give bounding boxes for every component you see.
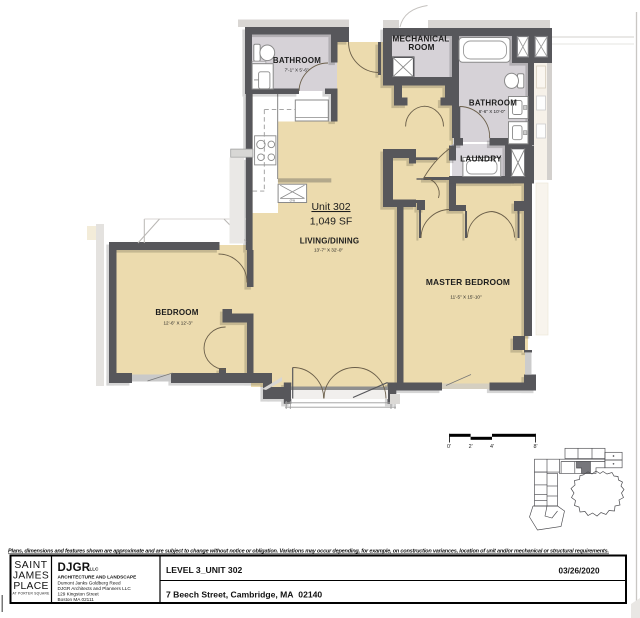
svg-text:Plans, dimensions and features: Plans, dimensions and features shown are… — [8, 549, 609, 555]
svg-text:2': 2' — [469, 444, 473, 450]
svg-text:129 Kingston Street: 129 Kingston Street — [58, 592, 100, 597]
svg-text:0': 0' — [447, 444, 451, 450]
svg-text:Boston MA 02111: Boston MA 02111 — [58, 597, 95, 602]
svg-text:1,049 SF: 1,049 SF — [310, 216, 353, 228]
svg-text:11'-5" X 15'-10": 11'-5" X 15'-10" — [450, 295, 482, 300]
svg-text:d w: d w — [290, 199, 296, 203]
svg-text:AT PORTER SQUARE: AT PORTER SQUARE — [12, 592, 49, 596]
svg-text:6'-6" X 10'-0": 6'-6" X 10'-0" — [479, 109, 506, 114]
svg-text:JAMES: JAMES — [13, 571, 49, 582]
svg-text:DJGR: DJGR — [58, 562, 91, 574]
svg-text:BATHROOM: BATHROOM — [273, 56, 321, 65]
svg-text:PLACE: PLACE — [13, 581, 48, 592]
svg-text:Dumont Janks Goldberg Reed: Dumont Janks Goldberg Reed — [58, 581, 121, 586]
svg-text:LAUNDRY: LAUNDRY — [460, 155, 502, 164]
svg-text:DJGR Architects and Planners L: DJGR Architects and Planners LLC — [58, 586, 132, 591]
svg-text:BATHROOM: BATHROOM — [469, 99, 517, 108]
svg-text:LIVING/DINING: LIVING/DINING — [300, 237, 360, 246]
svg-text:LEVEL 3_UNIT 302: LEVEL 3_UNIT 302 — [166, 565, 242, 575]
svg-text:LLC: LLC — [90, 567, 100, 572]
svg-text:SAINT: SAINT — [14, 560, 47, 571]
svg-text:03/26/2020: 03/26/2020 — [559, 567, 600, 576]
svg-text:Unit 302: Unit 302 — [311, 201, 350, 213]
svg-text:ROOM: ROOM — [408, 43, 434, 52]
svg-text:8': 8' — [533, 444, 537, 450]
svg-text:7'-1" X 5'-6": 7'-1" X 5'-6" — [285, 68, 309, 73]
svg-text:ARCHITECTURE AND LANDSCAPE: ARCHITECTURE AND LANDSCAPE — [58, 575, 137, 580]
svg-text:7 Beech Street, Cambridge, MA: 7 Beech Street, Cambridge, MA 02140 — [166, 590, 322, 600]
svg-text:BEDROOM: BEDROOM — [155, 308, 198, 317]
svg-text:12'-6" X 12'-3": 12'-6" X 12'-3" — [163, 321, 192, 326]
svg-text:13'-7" X 32'-0": 13'-7" X 32'-0" — [314, 248, 343, 253]
svg-text:MASTER BEDROOM: MASTER BEDROOM — [426, 277, 510, 287]
svg-text:4': 4' — [490, 444, 494, 450]
